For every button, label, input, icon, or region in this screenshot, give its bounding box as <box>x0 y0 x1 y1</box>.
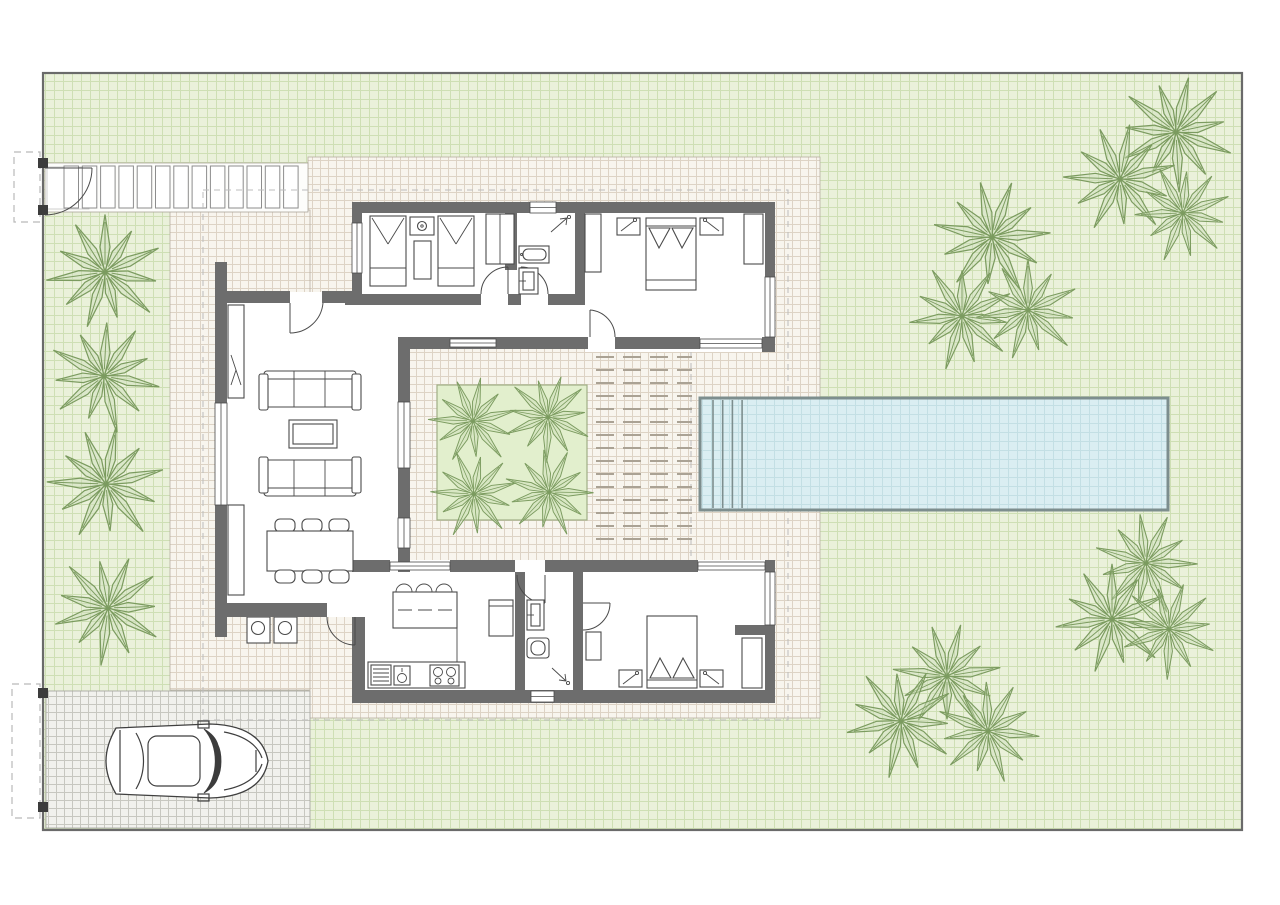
gate-post <box>38 802 48 812</box>
pergola-slat <box>119 166 133 208</box>
wood-deck <box>592 356 692 546</box>
dining-chair <box>275 519 295 532</box>
pergola-slat <box>137 166 152 208</box>
twin-bed <box>438 216 474 286</box>
wardrobe <box>742 638 762 688</box>
swimming-pool <box>700 398 1168 510</box>
gate-post <box>38 205 48 215</box>
closet <box>586 632 601 660</box>
pergola-slat <box>192 166 207 208</box>
nightstand <box>410 217 434 235</box>
dining-chair <box>302 570 322 583</box>
pergola-slat <box>101 166 116 208</box>
pergola-slat <box>229 166 244 208</box>
dining-chair <box>275 570 295 583</box>
pergola-slat <box>284 166 299 208</box>
dining-chair <box>329 519 349 532</box>
dining-set <box>267 519 353 583</box>
floor-plan-page <box>0 0 1280 905</box>
pool-water <box>700 398 1168 510</box>
pergola-slat <box>156 166 171 208</box>
twin-bed <box>370 216 406 286</box>
site-plan-svg <box>0 0 1280 905</box>
pergola-slat <box>64 166 79 208</box>
double-bed <box>646 218 696 290</box>
wardrobe <box>585 214 601 272</box>
gate-post <box>38 688 48 698</box>
pergola-walkway <box>45 163 308 212</box>
dining-chair <box>302 519 322 532</box>
pergola-slat <box>265 166 280 208</box>
driveway-gate-leaf <box>12 684 40 818</box>
gate-post <box>38 158 48 168</box>
sideboard <box>228 505 244 595</box>
parked-car <box>106 721 268 801</box>
sofa <box>264 460 356 496</box>
wardrobe <box>744 214 763 264</box>
pergola-slat <box>174 166 189 208</box>
dining-table <box>267 531 353 571</box>
pedestrian-gate-leaf <box>14 152 40 222</box>
dining-chair <box>329 570 349 583</box>
pergola-slat <box>82 166 97 208</box>
sofa <box>264 371 356 407</box>
pergola-slat <box>210 166 225 208</box>
double-bed <box>647 616 697 688</box>
tv-cabinet <box>228 305 244 398</box>
pergola-slat <box>247 166 262 208</box>
rug <box>414 241 431 279</box>
tall-unit <box>489 600 513 636</box>
